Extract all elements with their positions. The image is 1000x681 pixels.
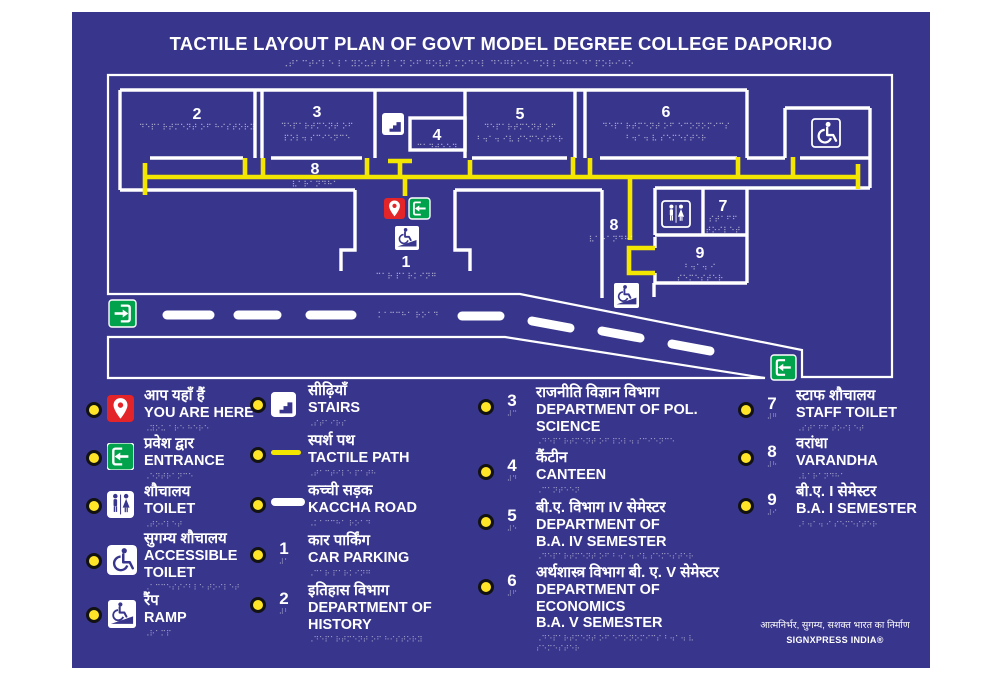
stairs-icon xyxy=(382,113,404,135)
accessible-toilet-icon-map xyxy=(812,119,840,147)
you-are-here-icon xyxy=(384,198,405,219)
wing-8-label: 8 xyxy=(610,217,619,234)
entrance-icon-lobby xyxy=(409,198,430,219)
legend-dot xyxy=(250,397,266,413)
svg-text:⠉⠁⠝⠞⠑⠑⠝: ⠉⠁⠝⠞⠑⠑⠝ xyxy=(416,143,457,152)
svg-text:⠙⠑⠏⠁⠗⠞⠍⠑⠝⠞ ⠕⠋ ⠓⠊⠎⠞⠕⠗⠽: ⠙⠑⠏⠁⠗⠞⠍⠑⠝⠞ ⠕⠋ ⠓⠊⠎⠞⠕⠗⠽ xyxy=(139,123,255,132)
legend-entrance: प्रवेश द्वारENTRANCE⠠⠑⠝⠞⠗⠁⠝⠉⠑ xyxy=(86,434,258,482)
legend-tactile-path: स्पर्श पथTACTILE PATH⠠⠞⠁⠉⠞⠊⠇⠑ ⠏⠁⠞⠓ xyxy=(250,431,470,479)
tactile-path xyxy=(143,157,858,273)
legend-dot xyxy=(250,447,266,463)
room-6-label: 6 xyxy=(662,104,671,121)
legend-number-6: 6⠼⠋ xyxy=(498,572,526,598)
legend-canteen: 4⠼⠙ कैंटीनCANTEEN⠠⠉⠁⠝⠞⠑⠑⠝ xyxy=(478,448,728,496)
legend-kaccha-road: कच्ची सड़कKACCHA ROAD⠠⠅⠁⠉⠉⠓⠁ ⠗⠕⠁⠙ xyxy=(250,481,470,529)
legend-number-2: 2⠼⠃ xyxy=(270,590,298,616)
corridor-8-label: 8 xyxy=(311,161,320,178)
legend-dept-history: 2⠼⠃ इतिहास विभागDEPARTMENT OF HISTORY⠠⠙⠑… xyxy=(250,581,480,645)
legend-varandha: 8⠼⠓ वरांधाVARANDHA⠠⠧⠁⠗⠁⠝⠙⠓⠁ xyxy=(738,434,933,482)
legend-dot xyxy=(478,579,494,595)
legend-staff-toilet: 7⠼⠛ स्टाफ शौचालयSTAFF TOILET⠠⠎⠞⠁⠋⠋ ⠞⠕⠊⠇⠑… xyxy=(738,386,933,434)
room-7-label: 7 xyxy=(719,198,728,215)
entrance-icon-road-west xyxy=(109,300,136,327)
legend-dot xyxy=(250,547,266,563)
svg-text:⠎⠑⠍⠑⠎⠞⠑⠗: ⠎⠑⠍⠑⠎⠞⠑⠗ xyxy=(677,274,724,283)
legend-dot xyxy=(478,399,494,415)
legend-dot xyxy=(738,450,754,466)
svg-text:⠧⠁⠗⠁⠝⠙⠓⠁: ⠧⠁⠗⠁⠝⠙⠓⠁ xyxy=(292,180,339,189)
svg-text:⠉⠁⠗ ⠏⠁⠗⠅⠊⠝⠛: ⠉⠁⠗ ⠏⠁⠗⠅⠊⠝⠛ xyxy=(375,272,436,281)
legend-dot xyxy=(478,514,494,530)
svg-text:⠞⠕⠊⠇⠑⠞: ⠞⠕⠊⠇⠑⠞ xyxy=(705,226,740,235)
svg-text:⠃⠲⠁⠲ ⠊⠧ ⠎⠑⠍⠑⠎⠞⠑⠗: ⠃⠲⠁⠲ ⠊⠧ ⠎⠑⠍⠑⠎⠞⠑⠗ xyxy=(476,135,563,144)
legend-dept-pol-science: 3⠼⠉ राजनीति विज्ञान विभागDEPARTMENT OF P… xyxy=(478,383,728,447)
room-3-label: 3 xyxy=(313,104,322,121)
legend-dot xyxy=(250,497,266,513)
legend-dot xyxy=(478,464,494,480)
footer: आत्मनिर्भर, सुगम्य, सशक्त भारत का निर्मा… xyxy=(735,620,935,645)
kaccha-road-swatch xyxy=(271,490,298,517)
room-4-label: 4 xyxy=(433,127,442,144)
room-labels: 2 ⠙⠑⠏⠁⠗⠞⠍⠑⠝⠞ ⠕⠋ ⠓⠊⠎⠞⠕⠗⠽ 3 ⠙⠑⠏⠁⠗⠞⠍⠑⠝⠞ ⠕⠋ … xyxy=(139,104,741,320)
toilet-icon-map xyxy=(662,201,690,227)
footer-tagline: आत्मनिर्भर, सुगम्य, सशक्त भारत का निर्मा… xyxy=(735,620,935,632)
parking-1-label: 1 xyxy=(402,254,411,271)
ramp-icon-lobby xyxy=(395,226,419,250)
svg-text:⠏⠕⠇⠲ ⠎⠉⠊⠑⠝⠉⠑: ⠏⠕⠇⠲ ⠎⠉⠊⠑⠝⠉⠑ xyxy=(284,134,351,143)
svg-text:⠙⠑⠏⠁⠗⠞⠍⠑⠝⠞ ⠕⠋ ⠑⠉⠕⠝⠕⠍⠊⠉⠎: ⠙⠑⠏⠁⠗⠞⠍⠑⠝⠞ ⠕⠋ ⠑⠉⠕⠝⠕⠍⠊⠉⠎ xyxy=(602,122,730,131)
legend-you-are-here: आप यहाँ हैंYOU ARE HERE⠠⠽⠕⠥ ⠁⠗⠑ ⠓⠑⠗⠑ xyxy=(86,386,258,434)
svg-text:⠎⠞⠁⠋⠋: ⠎⠞⠁⠋⠋ xyxy=(708,215,737,224)
footer-brand: SIGNXPRESS INDIA® xyxy=(735,635,935,645)
svg-text:⠙⠑⠏⠁⠗⠞⠍⠑⠝⠞ ⠕⠋: ⠙⠑⠏⠁⠗⠞⠍⠑⠝⠞ ⠕⠋ xyxy=(484,123,557,132)
svg-text:⠃⠲⠁⠲ ⠧ ⠎⠑⠍⠑⠎⠞⠑⠗: ⠃⠲⠁⠲ ⠧ ⠎⠑⠍⠑⠎⠞⠑⠗ xyxy=(625,134,706,143)
legend-car-parking: 1⠼⠁ कार पार्किंगCAR PARKING⠠⠉⠁⠗ ⠏⠁⠗⠅⠊⠝⠛ xyxy=(250,531,470,579)
legend-number-9: 9⠼⠊ xyxy=(758,491,786,517)
you-are-here-icon xyxy=(107,395,134,422)
stairs-icon xyxy=(271,392,296,417)
site-boundary xyxy=(108,75,892,378)
tactile-path-swatch xyxy=(271,440,298,467)
svg-text:⠃⠲⠁⠲ ⠊: ⠃⠲⠁⠲ ⠊ xyxy=(684,263,716,272)
legend-dot xyxy=(86,498,102,514)
legend-ramp: रैंपRAMP⠠⠗⠁⠍⠏ xyxy=(86,591,258,639)
svg-text:⠧⠁⠗⠁⠝⠙⠓⠁: ⠧⠁⠗⠁⠝⠙⠓⠁ xyxy=(589,235,636,244)
legend-accessible-toilet: सुगम्य शौचालयACCESSIBLETOILET⠠⠁⠉⠉⠑⠎⠎⠊⠃⠇⠑… xyxy=(86,529,258,593)
legend-dot xyxy=(86,450,102,466)
ramp-icon xyxy=(107,600,137,628)
legend-dot xyxy=(738,402,754,418)
legend-number-8: 8⠼⠓ xyxy=(758,443,786,469)
legend-ba-iv-semester: 5⠼⠑ बी.ए. विभाग IV सेमेस्टरDEPARTMENT OF… xyxy=(478,498,728,562)
road-dashes xyxy=(167,315,710,351)
room-2-label: 2 xyxy=(193,106,202,123)
entrance-icon-road-southeast xyxy=(771,355,796,380)
legend-dot xyxy=(738,498,754,514)
toilet-icon xyxy=(107,491,134,518)
road-braille: ⠅⠁⠉⠉⠓⠁ ⠗⠕⠁⠙ xyxy=(377,311,438,320)
legend-dot xyxy=(86,402,102,418)
legend-stairs: सीढ़ियाँSTAIRS⠠⠎⠞⠁⠊⠗⠎ xyxy=(250,381,470,429)
accessible-toilet-icon xyxy=(107,545,137,575)
legend-number-1: 1⠼⠁ xyxy=(270,540,298,566)
legend-toilet: शौचालयTOILET⠠⠞⠕⠊⠇⠑⠞ xyxy=(86,482,258,530)
legend-ba-i-semester: 9⠼⠊ बी.ए. I सेमेस्टरB.A. I SEMESTER⠠⠃⠲⠁⠲… xyxy=(738,482,933,530)
legend-number-5: 5⠼⠑ xyxy=(498,507,526,533)
legend-number-3: 3⠼⠉ xyxy=(498,392,526,418)
legend-dot xyxy=(86,553,102,569)
legend-dot xyxy=(86,607,102,623)
svg-text:⠙⠑⠏⠁⠗⠞⠍⠑⠝⠞ ⠕⠋: ⠙⠑⠏⠁⠗⠞⠍⠑⠝⠞ ⠕⠋ xyxy=(281,122,354,131)
room-5-label: 5 xyxy=(516,106,525,123)
legend-number-7: 7⠼⠛ xyxy=(758,395,786,421)
ramp-icon-south xyxy=(614,283,639,308)
building-walls xyxy=(120,90,870,298)
legend-dept-economics: 6⠼⠋ अर्थशास्त्र विभाग बी. ए. V सेमेस्टरD… xyxy=(478,563,728,654)
legend-number-4: 4⠼⠙ xyxy=(498,457,526,483)
entrance-icon xyxy=(107,443,134,470)
room-9-label: 9 xyxy=(696,245,705,262)
legend-dot xyxy=(250,597,266,613)
